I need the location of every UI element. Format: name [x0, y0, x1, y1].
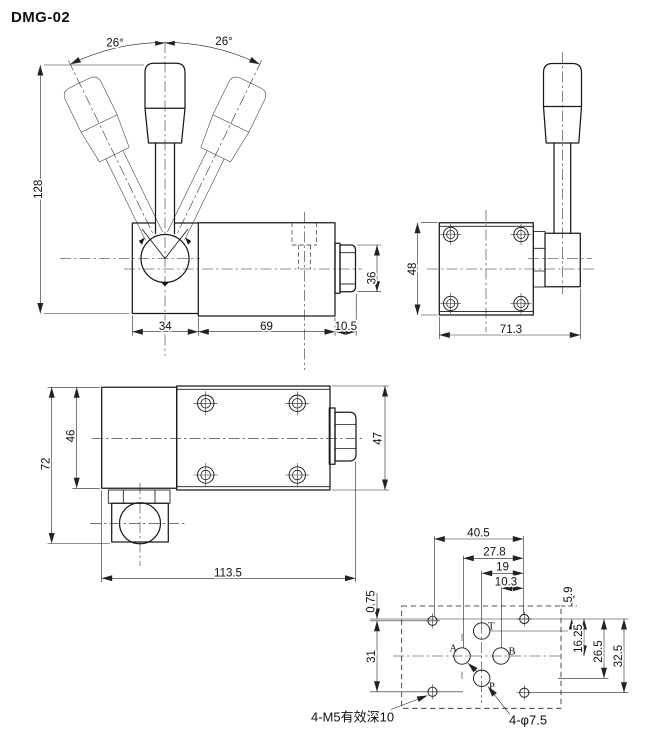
dim-128: 128 — [33, 180, 45, 199]
front-view: 26° 26° 128 — [33, 36, 381, 370]
dim-46: 46 — [66, 430, 78, 443]
end-view: 48 71.3 — [407, 52, 597, 339]
dim-72: 72 — [41, 458, 53, 471]
mounting-bolt — [194, 391, 218, 415]
pivot-nut — [533, 232, 545, 288]
mounting-bolt — [440, 293, 461, 314]
note-port-diameter: 4-φ7.5 — [509, 713, 547, 728]
dim-10-3: 10.3 — [495, 577, 517, 589]
valve-body-outline — [198, 223, 335, 316]
mounting-bolt — [440, 224, 461, 245]
top-view: 46 72 113.5 47 — [41, 386, 390, 582]
pivot-hex-facets — [123, 490, 155, 503]
dim-113-5: 113.5 — [214, 567, 242, 579]
cap-hex — [335, 412, 356, 461]
m5-thread-hole — [517, 612, 532, 627]
angle-dim-left: 26° — [106, 38, 123, 50]
mounting-bolt — [285, 391, 309, 415]
ball-chamfer-right — [185, 238, 191, 245]
pivot-block-outline — [132, 223, 198, 314]
dim-48: 48 — [407, 263, 419, 276]
dim-47: 47 — [373, 432, 385, 445]
note-m5-threads: 4-M5有效深10 — [311, 710, 394, 725]
dim-34: 34 — [159, 321, 172, 333]
port-label-p: P — [489, 682, 495, 693]
dim-5-9: 5.9 — [563, 587, 575, 603]
lever-mount-block — [545, 233, 580, 286]
m5-thread-hole — [425, 684, 440, 699]
angle-dim-right: 26° — [215, 36, 232, 48]
dim-16-25: 16.25 — [573, 624, 585, 653]
mounting-bolt — [511, 293, 532, 314]
pivot-block-outline — [102, 387, 177, 488]
drawing-page: DMG-02 26° 26° — [0, 0, 650, 745]
leader-line — [468, 663, 478, 672]
m5-thread-hole — [425, 613, 440, 628]
pivot-hex-nut — [108, 490, 170, 503]
mounting-bolt — [511, 224, 532, 245]
dim-19: 19 — [496, 562, 509, 574]
port-label-a: A — [450, 644, 458, 655]
port-label-t: T — [488, 622, 495, 633]
pivot-nut-flats — [533, 248, 545, 271]
m5-thread-hole — [517, 685, 532, 700]
dim-32-5: 32.5 — [613, 645, 625, 667]
cap-hex-flats — [340, 253, 356, 284]
ball-chamfer-bottom — [161, 282, 170, 286]
mounting-bolt — [285, 463, 309, 487]
dim-31: 31 — [366, 650, 378, 663]
dim-71-3: 71.3 — [500, 324, 522, 336]
dim-27-8: 27.8 — [483, 547, 505, 559]
arc-apex-arrow-right — [166, 41, 175, 46]
ball-chamfer-left — [139, 238, 145, 245]
valve-body-outline — [177, 386, 330, 490]
mounting-bolt — [194, 463, 218, 487]
port-label-b: B — [509, 647, 516, 658]
dim-40-5: 40.5 — [467, 527, 489, 539]
cap-hex-flats — [335, 425, 356, 449]
cap-flange — [335, 243, 340, 293]
dim-36: 36 — [367, 272, 379, 285]
lever-handle-right-phantom — [158, 52, 280, 246]
leader-line — [391, 696, 428, 710]
dim-26-5: 26.5 — [593, 640, 605, 662]
page-title: DMG-02 — [11, 9, 70, 26]
arc-apex-arrow-left — [155, 41, 164, 46]
cap-hex — [340, 245, 356, 292]
dim-69: 69 — [260, 321, 273, 333]
lever-handle-left-phantom — [50, 52, 172, 246]
leader-line — [488, 687, 510, 715]
dim-0-75: 0.75 — [366, 590, 378, 612]
port-view: T A B P 40.5 27.8 19 10.3 5.9 16.25 26.5… — [311, 527, 629, 727]
dim-10-5: 10.5 — [335, 321, 357, 333]
